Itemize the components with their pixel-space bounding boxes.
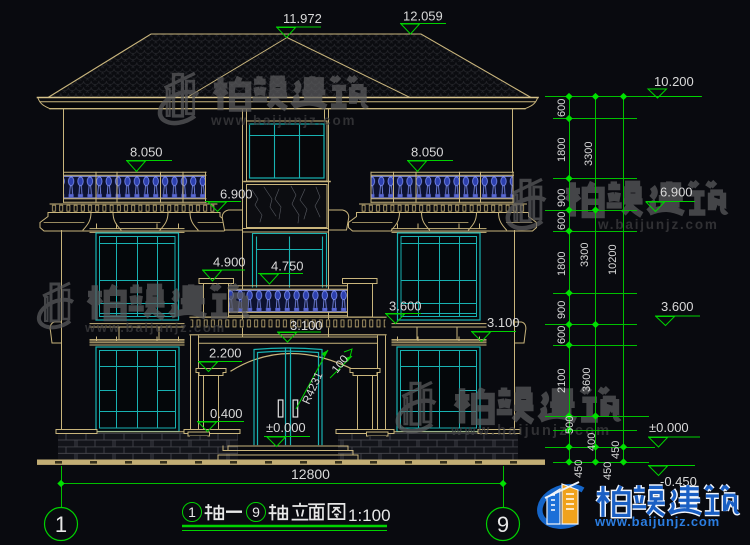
svg-text:450: 450 xyxy=(573,460,585,478)
svg-text:400: 400 xyxy=(586,433,598,451)
svg-text:900: 900 xyxy=(556,301,568,319)
svg-text:www.baijunjz.com: www.baijunjz.com xyxy=(210,113,356,128)
svg-text:www.baijunjz.com: www.baijunjz.com xyxy=(594,514,720,529)
svg-text:1800: 1800 xyxy=(556,138,568,162)
svg-text:9: 9 xyxy=(497,512,509,537)
svg-text:11.972: 11.972 xyxy=(283,11,322,26)
svg-text:600: 600 xyxy=(556,326,568,344)
svg-text:450: 450 xyxy=(610,441,622,459)
svg-text:±0.000: ±0.000 xyxy=(649,420,689,435)
svg-text:4.750: 4.750 xyxy=(271,259,304,274)
svg-text:0.400: 0.400 xyxy=(210,406,243,421)
svg-text:3300: 3300 xyxy=(583,142,595,166)
svg-text:6.900: 6.900 xyxy=(220,187,253,202)
svg-text:www.baijunjz.com: www.baijunjz.com xyxy=(84,320,226,335)
svg-text:1:100: 1:100 xyxy=(348,506,391,525)
svg-text:1: 1 xyxy=(188,504,196,520)
svg-text:w.baijunjz.com: w.baijunjz.com xyxy=(597,217,719,232)
svg-text:2.200: 2.200 xyxy=(209,346,242,361)
svg-text:3600: 3600 xyxy=(581,368,593,392)
svg-text:1: 1 xyxy=(55,512,67,537)
svg-text:3.100: 3.100 xyxy=(290,318,323,333)
svg-text:10.200: 10.200 xyxy=(654,74,694,89)
svg-text:12800: 12800 xyxy=(291,466,330,482)
svg-text:450: 450 xyxy=(602,462,614,480)
svg-text:4.900: 4.900 xyxy=(213,255,246,270)
svg-text:600: 600 xyxy=(556,99,568,117)
svg-text:3.100: 3.100 xyxy=(487,315,520,330)
svg-text:3300: 3300 xyxy=(579,243,591,267)
svg-text:10200: 10200 xyxy=(607,244,619,275)
svg-text:±0.000: ±0.000 xyxy=(266,420,306,435)
svg-text:2100: 2100 xyxy=(556,369,568,393)
svg-text:1800: 1800 xyxy=(556,252,568,276)
svg-text:3.600: 3.600 xyxy=(389,299,422,314)
svg-text:9: 9 xyxy=(252,504,260,520)
svg-text:600: 600 xyxy=(556,212,568,230)
svg-text:500: 500 xyxy=(564,416,576,434)
svg-text:3.600: 3.600 xyxy=(661,299,694,314)
svg-text:6.900: 6.900 xyxy=(660,185,693,200)
svg-text:12.059: 12.059 xyxy=(403,9,443,24)
svg-text:8.050: 8.050 xyxy=(130,145,163,160)
svg-text:900: 900 xyxy=(556,189,568,207)
svg-text:8.050: 8.050 xyxy=(411,145,444,160)
